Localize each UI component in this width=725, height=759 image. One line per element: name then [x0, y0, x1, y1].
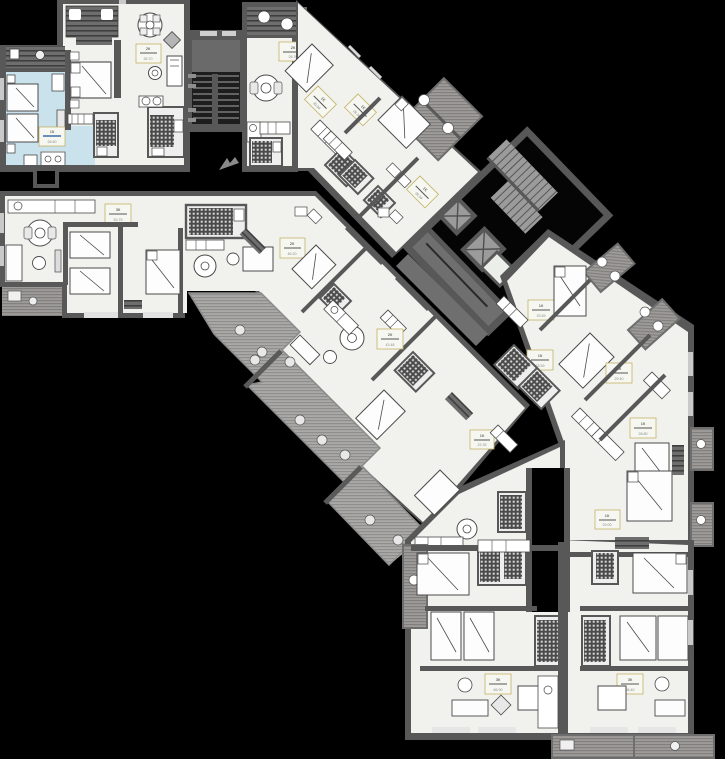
svg-text:2К: 2К — [291, 45, 296, 50]
svg-text:29.40: 29.40 — [615, 377, 624, 381]
svg-text:28.60: 28.60 — [48, 140, 57, 144]
svg-text:1К: 1К — [538, 353, 543, 358]
svg-text:3К: 3К — [628, 677, 633, 682]
svg-text:33.59: 33.59 — [537, 314, 546, 318]
svg-text:22.35: 22.35 — [478, 443, 487, 447]
svg-text:2К: 2К — [146, 46, 151, 51]
svg-text:53.75: 53.75 — [114, 218, 123, 222]
svg-text:35.70: 35.70 — [144, 57, 153, 61]
svg-text:43.48: 43.48 — [386, 343, 395, 347]
svg-text:1К: 1К — [605, 513, 610, 518]
svg-text:46.20: 46.20 — [288, 252, 297, 256]
svg-text:66.40: 66.40 — [626, 688, 635, 692]
svg-text:28.80: 28.80 — [639, 432, 648, 436]
svg-text:1К: 1К — [480, 433, 485, 438]
svg-text:1К: 1К — [641, 421, 646, 426]
svg-text:3К: 3К — [116, 207, 121, 212]
svg-text:66.90: 66.90 — [494, 688, 503, 692]
svg-text:29.00: 29.00 — [603, 523, 612, 527]
svg-text:1К: 1К — [539, 303, 544, 308]
svg-text:1К: 1К — [50, 129, 55, 134]
svg-text:3К: 3К — [496, 677, 501, 682]
svg-text:2К: 2К — [290, 241, 295, 246]
svg-text:2К: 2К — [388, 332, 393, 337]
